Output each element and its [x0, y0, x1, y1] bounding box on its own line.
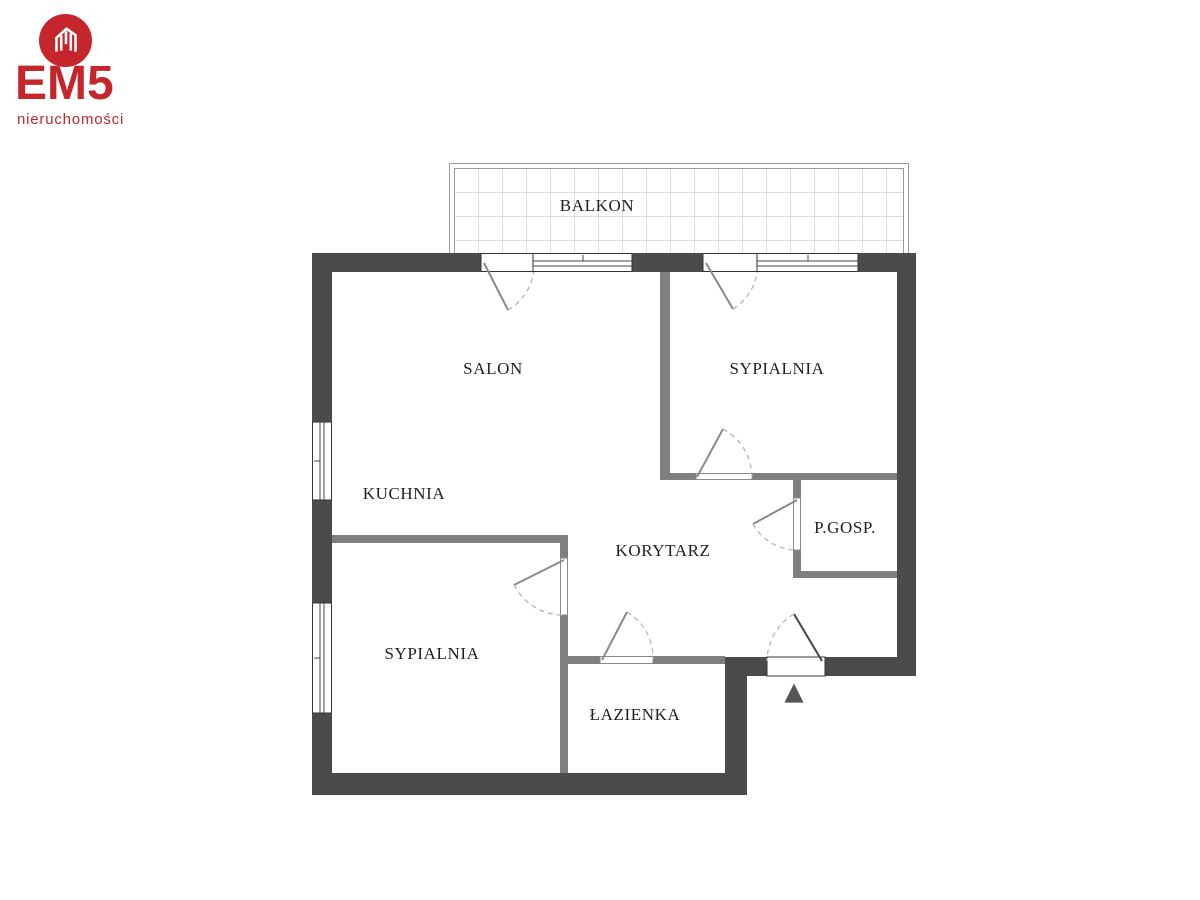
balcony-tile-grid	[454, 168, 904, 254]
door-bedroom1	[696, 474, 752, 480]
wall-top-mid	[632, 253, 703, 272]
balcony-door-bedroom	[703, 254, 757, 272]
wall-left-middle	[312, 500, 332, 603]
wall-bottom	[312, 773, 747, 795]
room-label-balkon: BALKON	[560, 196, 634, 216]
wall-bedroom1-bottom-right	[752, 473, 897, 480]
wall-left-lower	[312, 713, 332, 773]
balcony-area	[449, 163, 909, 255]
wall-bedroom2-right-bottom	[560, 615, 568, 773]
room-label-sypialnia-2: SYPIALNIA	[384, 644, 479, 664]
window-bedroom1-top	[757, 254, 858, 272]
window-salon-top	[533, 254, 632, 272]
door-entrance	[767, 657, 825, 676]
door-utility	[794, 498, 801, 550]
wall-bathroom-top-left	[568, 656, 600, 664]
room-label-lazienka: ŁAZIENKA	[590, 705, 681, 725]
wall-bedroom1-bottom-left	[660, 473, 696, 480]
wall-left-upper	[312, 272, 332, 422]
wall-bathroom-right	[725, 657, 747, 795]
room-label-korytarz: KORYTARZ	[615, 541, 710, 561]
house-icon	[49, 24, 83, 58]
room-label-salon: SALON	[463, 359, 523, 379]
wall-right	[897, 253, 916, 676]
door-bedroom2	[561, 558, 568, 615]
wall-top-left	[312, 253, 481, 272]
wall-utility-left-top	[793, 480, 801, 498]
balcony-door-salon	[481, 254, 533, 272]
wall-bedroom2-right-top	[560, 543, 568, 558]
floor-plan-page: EM5 nieruchomości	[0, 0, 1200, 900]
wall-utility-bottom	[793, 571, 897, 578]
window-bedroom2-left	[313, 603, 332, 713]
door-bathroom	[600, 657, 653, 664]
room-label-kuchnia: KUCHNIA	[363, 484, 446, 504]
room-label-sypialnia-1: SYPIALNIA	[729, 359, 824, 379]
brand-name: EM5	[15, 60, 114, 108]
room-label-pgosp: P.GOSP.	[814, 518, 876, 538]
wall-bathroom-top-right	[653, 656, 725, 664]
brand-subtitle: nieruchomości	[17, 111, 124, 128]
wall-salon-bedroom-divider	[660, 272, 670, 473]
window-kitchen-left	[313, 422, 332, 500]
brand-logo: EM5 nieruchomości	[0, 0, 220, 140]
wall-kitchen-bedroom2	[332, 535, 568, 543]
entrance-arrow-icon: ▲	[784, 679, 803, 704]
wall-entrance-left	[747, 657, 767, 676]
